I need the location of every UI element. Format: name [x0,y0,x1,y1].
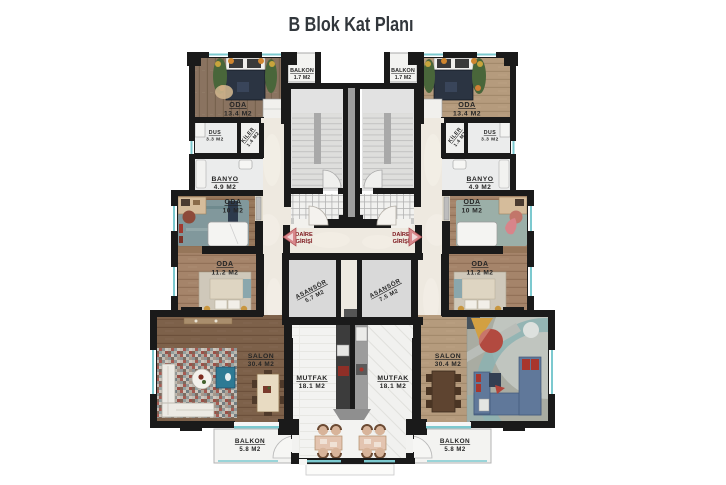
svg-text:3.3 M2: 3.3 M2 [206,137,224,143]
svg-text:13.4 M2: 13.4 M2 [453,111,481,118]
svg-text:DUS: DUS [209,130,221,136]
svg-text:MUTFAK: MUTFAK [296,375,327,382]
svg-text:11.2 M2: 11.2 M2 [212,269,239,276]
svg-text:DUS: DUS [484,130,496,136]
svg-text:DAİRE: DAİRE [392,231,410,238]
svg-text:BANYO: BANYO [466,176,493,183]
svg-text:10 M2: 10 M2 [462,207,483,214]
svg-text:3.3 M2: 3.3 M2 [481,137,499,143]
svg-text:GİRİŞİ: GİRİŞİ [296,238,313,245]
svg-text:ODA: ODA [229,100,246,109]
svg-text:10 M2: 10 M2 [223,207,244,214]
svg-text:BALKON: BALKON [290,68,314,74]
svg-text:BALKON: BALKON [235,438,265,445]
svg-text:BALKON: BALKON [391,68,415,74]
svg-text:BALKON: BALKON [440,438,470,445]
svg-text:BANYO: BANYO [211,176,238,183]
svg-text:ODA: ODA [471,261,488,268]
svg-text:GİRİŞİ: GİRİŞİ [393,238,410,245]
svg-text:ODA: ODA [458,100,475,109]
svg-text:MUTFAK: MUTFAK [377,375,408,382]
svg-text:ODA: ODA [463,199,480,206]
svg-text:5.8 M2: 5.8 M2 [239,447,261,453]
svg-text:SALON: SALON [435,353,461,360]
svg-text:ODA: ODA [224,199,241,206]
svg-text:SALON: SALON [248,353,274,360]
svg-text:4.9 M2: 4.9 M2 [214,184,237,191]
svg-text:1.7 M2: 1.7 M2 [395,75,411,81]
svg-text:B Blok Kat Planı: B Blok Kat Planı [289,13,414,36]
svg-text:18.1 M2: 18.1 M2 [299,383,326,390]
svg-text:18.1 M2: 18.1 M2 [380,383,407,390]
svg-text:13.4 M2: 13.4 M2 [224,111,252,118]
svg-text:1.7 M2: 1.7 M2 [294,75,310,81]
svg-text:5.8 M2: 5.8 M2 [444,447,466,453]
svg-text:30.4 M2: 30.4 M2 [248,361,275,368]
svg-text:11.2 M2: 11.2 M2 [467,269,494,276]
svg-text:30.4 M2: 30.4 M2 [435,361,462,368]
svg-text:4.9 M2: 4.9 M2 [469,184,492,191]
svg-text:ODA: ODA [216,261,233,268]
svg-text:DAİRE: DAİRE [295,231,313,238]
